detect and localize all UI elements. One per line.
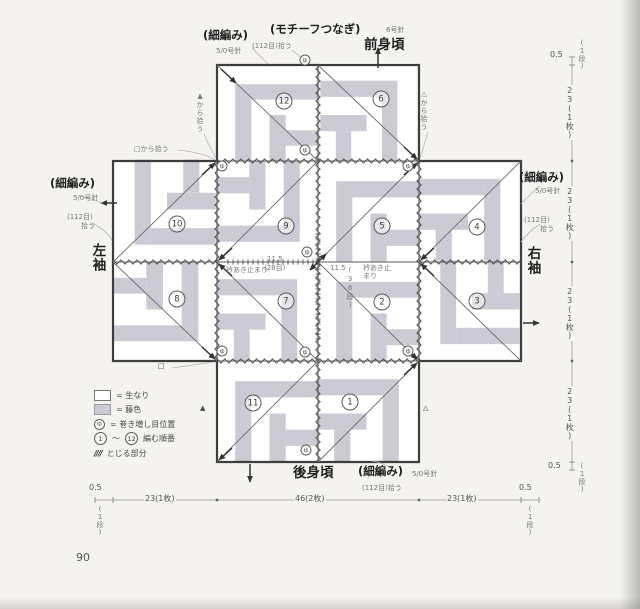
legend-seam-label: とじる部分: [107, 448, 147, 459]
legend-wisteria: = 藤色: [94, 403, 175, 418]
left-pickup-verb: 拾う: [81, 222, 95, 230]
motif-number: 1: [342, 394, 359, 411]
right-height-2: 23(1枚): [565, 186, 574, 241]
motif-number: 6: [373, 91, 390, 108]
bottom-hook-label: 5/0号針: [412, 470, 437, 478]
left-pickup-sts: (112目): [67, 213, 93, 221]
seam-hatch-icon: ////: [94, 449, 102, 458]
bottom-pickup-label: (112目)拾う: [362, 484, 402, 492]
motif-number: 12: [276, 93, 293, 110]
motif-number: 11: [245, 395, 262, 412]
scan-shadow-right: [620, 0, 640, 609]
right-edging-label: (細編み): [519, 171, 564, 184]
left-edging-label: (細編み): [50, 177, 95, 190]
right-top-half-unit: (1段): [578, 38, 586, 71]
motif-number: 3: [469, 293, 486, 310]
bottom-width-left: 23(1枚): [144, 494, 176, 503]
needle6-label: 6号針: [386, 26, 404, 34]
natural-color-swatch: [94, 390, 111, 401]
front-body-label: 前身頃: [364, 38, 405, 54]
pickup-from-filled-triangle-note: ▲から拾う: [196, 92, 204, 168]
filled-triangle-anchor-mark: ▲: [200, 404, 205, 412]
legend-wisteria-label: = 藤色: [116, 404, 141, 415]
wrap-increase-mark: ゆ: [217, 346, 228, 357]
right-height-3: 23(1枚): [565, 286, 574, 341]
right-pickup-sts: (112目): [524, 216, 550, 224]
bottom-left-half-value: 0.5: [88, 483, 103, 492]
top-edging-label: (細編み): [203, 29, 248, 42]
order-to-icon: 12: [125, 432, 138, 445]
bottom-left-half-unit: (1段): [96, 504, 104, 537]
bottom-right-half-value: 0.5: [518, 483, 533, 492]
scan-shadow-bottom: [0, 597, 640, 609]
motif-number: 10: [169, 216, 186, 233]
top-pickup-label: (112目)拾う: [252, 42, 292, 50]
motif-number: 4: [469, 219, 486, 236]
right-top-half-value: 0.5: [549, 50, 564, 59]
motif-number: 8: [169, 291, 186, 308]
right-bottom-half-value: 0.5: [547, 461, 562, 470]
wrap-increase-mark: ゆ: [403, 346, 414, 357]
top-hook-label: 5/0号針: [216, 47, 241, 55]
right-height-1: 23(1枚): [565, 85, 574, 140]
right-bottom-half-unit: (1段): [578, 461, 586, 494]
back-body-label: 後身頃: [293, 466, 334, 482]
scanned-pattern-page: (細編み) 5/0号針 (112目)拾う (モチーフつなぎ) 6号針 前身頃 □…: [0, 0, 640, 609]
neck-depth-value: 11.5: [330, 264, 346, 272]
neck-width-value: 11.5: [267, 255, 283, 263]
motif-join-label: (モチーフつなぎ): [270, 23, 360, 36]
right-pickup-verb: 拾う: [540, 225, 554, 233]
pickup-from-square-note: □から拾う: [134, 145, 169, 153]
neck-stop-right-label: 衿あき止まり: [363, 264, 391, 280]
legend-wrap-label: = 巻き増し目位置: [110, 419, 175, 430]
bottom-edging-label: (細編み): [358, 465, 403, 478]
page-number: 90: [76, 551, 90, 564]
wrap-increase-mark: ゆ: [300, 55, 311, 66]
legend-order: 1 〜 12 編む順番: [94, 432, 175, 447]
square-anchor-mark: □: [158, 362, 165, 370]
pickup-from-open-triangle-note: △から拾う: [420, 90, 428, 166]
wrap-increase-icon: ゆ: [94, 419, 105, 430]
bottom-right-half-unit: (1段): [526, 504, 534, 537]
wisteria-color-swatch: [94, 404, 111, 415]
order-tilde: 〜: [112, 433, 120, 444]
neck-stop-left-label: 衿あき止まり: [226, 266, 268, 274]
neck-depth-sub: (36段): [346, 266, 354, 306]
open-triangle-anchor-mark: △: [423, 404, 428, 412]
legend-order-label: 編む順番: [143, 433, 175, 444]
legend-natural-label: = 生なり: [116, 390, 149, 401]
wrap-increase-mark: ゆ: [300, 347, 311, 358]
neck-width-sub: (28目): [264, 264, 285, 272]
wrap-increase-mark: ゆ: [301, 445, 312, 456]
right-sleeve-label: 右袖: [524, 246, 540, 275]
right-hook-label: 5/0号針: [535, 187, 560, 195]
bottom-width-right: 23(1枚): [446, 494, 478, 503]
wrap-increase-mark: ゆ: [403, 161, 414, 172]
left-sleeve-label: 左袖: [89, 243, 105, 272]
left-hook-label: 5/0号針: [73, 194, 98, 202]
legend-natural: = 生なり: [94, 388, 175, 403]
wrap-increase-mark: ゆ: [302, 247, 313, 258]
legend: = 生なり = 藤色 ゆ = 巻き増し目位置 1 〜 12 編む順番 //// …: [94, 388, 175, 461]
bottom-width-center: 46(2枚): [294, 494, 326, 503]
order-from-icon: 1: [94, 432, 107, 445]
legend-seam: //// とじる部分: [94, 446, 175, 461]
motif-number: 7: [278, 293, 295, 310]
wrap-increase-mark: ゆ: [300, 145, 311, 156]
motif-number: 9: [278, 218, 295, 235]
legend-wrap-increase: ゆ = 巻き増し目位置: [94, 417, 175, 432]
motif-number: 5: [374, 218, 391, 235]
right-height-4: 23(1枚): [565, 386, 574, 441]
motif-number: 2: [374, 294, 391, 311]
wrap-increase-mark: ゆ: [217, 161, 228, 172]
